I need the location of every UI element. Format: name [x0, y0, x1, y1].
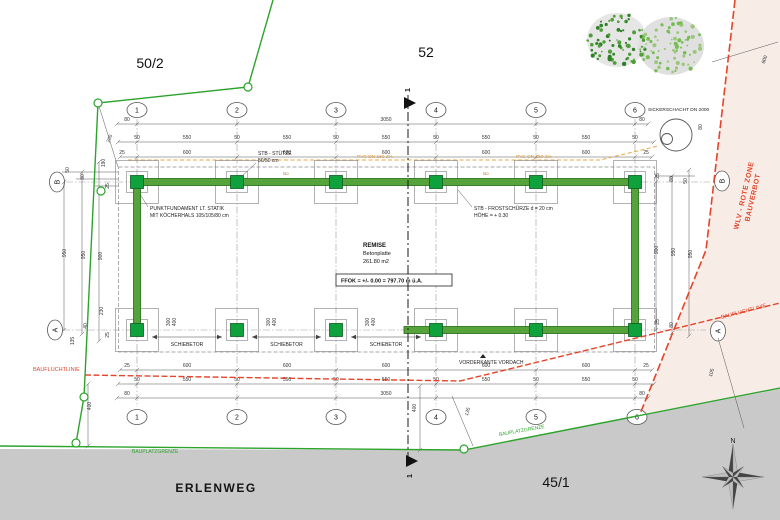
dimension-text-group: 950	[62, 249, 68, 258]
tree-foliage-dot	[659, 62, 662, 65]
tree-foliage-dot	[698, 47, 702, 51]
dimension-text: 135	[70, 337, 76, 346]
tree-foliage-dot	[674, 70, 676, 72]
tree-foliage-dot	[639, 48, 641, 50]
gate-arrow-left-icon	[152, 335, 157, 339]
tree-foliage-dot	[601, 51, 603, 53]
column-footing-green	[430, 176, 443, 189]
tree-foliage-dot	[683, 51, 687, 55]
dimension-text: 25	[643, 150, 649, 156]
dimension-text: 550	[582, 377, 591, 383]
dimension-text-group: 25	[105, 183, 111, 189]
bauplatzgrenze-label-left: BAUPLATZGRENZE	[132, 449, 179, 455]
tree-foliage-dot	[627, 14, 630, 17]
grid-bubble-top-1: 1	[127, 103, 147, 118]
vordach-annotation: VORDERKANTE VORDACH	[459, 354, 524, 366]
dimension-text: 25	[105, 332, 111, 338]
dimension-text: 600	[183, 363, 192, 369]
tree-foliage-dot	[628, 18, 630, 20]
gate-arrow-right-icon	[316, 335, 321, 339]
grid-bubble-top-5: 5	[526, 103, 546, 118]
tree-foliage-dot	[598, 54, 601, 57]
tree-foliage-dot	[657, 39, 659, 41]
dimension-text: 550	[482, 135, 491, 141]
tree-foliage-dot	[667, 60, 669, 62]
dimension-text-group: 230	[99, 307, 105, 316]
grid-bubble-bottom-4: 4	[426, 410, 446, 425]
tree-foliage-dot	[658, 50, 660, 52]
tree-foliage-dot	[693, 50, 697, 54]
tree-foliage-dot	[608, 50, 612, 54]
tree-foliage-dot	[611, 44, 614, 47]
dimension-text: 50	[632, 377, 638, 383]
tree-foliage-dot	[642, 58, 645, 61]
dimension-text: 600	[582, 150, 591, 156]
tree-foliage-dot	[600, 21, 602, 23]
dimension-text: 230	[99, 307, 105, 316]
pvc-label-left: PVC DN 150 2% →	[357, 154, 399, 160]
frost-skirt-beam-east	[632, 179, 639, 334]
dimension-text-group: 25	[655, 319, 661, 325]
dimension-text: 950	[62, 249, 68, 258]
tree-foliage-dot	[666, 67, 670, 71]
dimension-text: 50	[533, 377, 539, 383]
dimension-text: 25	[655, 319, 661, 325]
parcel-label-45-1: 45/1	[542, 474, 569, 490]
grid-bubble-top-6: 6	[625, 103, 645, 118]
dimension-text: 50	[234, 135, 240, 141]
grid-bubble-label: 1	[135, 415, 139, 422]
ffok-value: FFOK = +/- 0.00 = 797.70 m ü.A.	[341, 279, 423, 285]
dimension-text-group: 25	[105, 332, 111, 338]
tree-group	[586, 13, 704, 75]
dimension-text-group: 950	[671, 248, 677, 257]
dimension-text-group: 135	[70, 337, 76, 346]
tree-foliage-dot	[625, 58, 627, 60]
section-number-top-group: 1	[405, 88, 412, 92]
dimension-text: 50	[333, 377, 339, 383]
dimension-text-group: 950	[688, 250, 694, 259]
dimension-text: 50	[533, 135, 539, 141]
tree-foliage-dot	[652, 51, 655, 54]
vordach-marker-icon	[480, 354, 486, 358]
parcel-label-50-2: 50/2	[136, 55, 163, 71]
tree-foliage-dot	[597, 58, 599, 60]
tree-foliage-dot	[693, 61, 695, 63]
dimension-text-group: 400	[87, 402, 93, 411]
tree-foliage-dot	[622, 62, 626, 66]
boundary-point-icon	[460, 445, 468, 453]
tree-foliage-dot	[646, 37, 650, 41]
shaft-label: SICKERSCHACHT DN 2000	[648, 107, 710, 113]
tree-foliage-dot	[660, 23, 663, 26]
tree-foliage-dot	[655, 29, 658, 32]
gate-size-dims: 300400	[365, 318, 377, 327]
street-name-label: ERLENWEG	[175, 481, 256, 495]
tree-foliage-dot	[616, 39, 618, 41]
tree-foliage-dot	[673, 57, 676, 60]
tree-foliage-dot	[682, 55, 685, 58]
tree-foliage-dot	[617, 20, 620, 23]
frost-skirt-beam-north	[134, 179, 639, 186]
tree-foliage-dot	[676, 61, 680, 65]
tree-foliage-dot	[654, 60, 658, 64]
tree-foliage-dot	[608, 20, 610, 22]
tree-foliage-dot	[628, 37, 631, 40]
dimension-text: 50	[134, 135, 140, 141]
tree-foliage-dot	[654, 69, 657, 72]
tree-foliage-dot	[676, 46, 678, 48]
tree-foliage-dot	[649, 40, 652, 43]
gate-arrow-right-icon	[217, 335, 222, 339]
grid-bubble-bottom-5: 5	[526, 410, 546, 425]
stuetze-label-line2: 50/50 cm	[258, 158, 279, 164]
grid-bubble-row-b-right: B	[715, 171, 730, 191]
dimension-text: 50	[134, 377, 140, 383]
tree-foliage-dot	[598, 45, 601, 48]
tree-foliage-dot	[666, 30, 669, 33]
dimension-text-group: 80	[698, 124, 704, 130]
column-footing-green	[330, 176, 343, 189]
section-number-bottom-group: 1	[407, 474, 414, 478]
gates-group: SCHIEBETOR300400SCHIEBETOR300400SCHIEBET…	[152, 318, 421, 348]
tree-foliage-dot	[682, 63, 685, 66]
dimension-text: 25	[105, 183, 111, 189]
tree-foliage-dot	[679, 21, 682, 24]
tree-foliage-dot	[670, 43, 672, 45]
grid-bubble-label: A	[716, 328, 723, 333]
tree-foliage-dot	[640, 51, 642, 53]
tree-foliage-dot	[691, 35, 695, 39]
grid-bubble-bottom-2: 2	[227, 410, 247, 425]
grid-bubble-label: 5	[534, 108, 538, 115]
parcel-label-52: 52	[418, 44, 434, 60]
grid-bubble-label: 2	[235, 415, 239, 422]
tree-foliage-dot	[698, 33, 701, 36]
iso-mark-right: Iso	[483, 171, 489, 176]
dimension-text: 950	[81, 251, 87, 260]
tree-foliage-dot	[617, 40, 621, 44]
tree-foliage-dot	[605, 23, 608, 26]
tree-foliage-dot	[622, 49, 624, 51]
tree-foliage-dot	[676, 31, 679, 34]
dimension-text-group: 50	[683, 178, 689, 184]
column-footing-green	[430, 324, 443, 337]
tree-foliage-dot	[657, 66, 661, 70]
grid-bubble-label: 2	[235, 108, 239, 115]
tree-foliage-dot	[650, 50, 652, 52]
tree-foliage-dot	[669, 17, 673, 21]
building-area: 261.80 m2	[363, 259, 389, 265]
tree-foliage-dot	[608, 33, 611, 36]
dimension-text-group: 80	[669, 322, 675, 328]
leader-line	[242, 163, 256, 176]
grid-bubble-top-4: 4	[426, 103, 446, 118]
tree-foliage-dot	[671, 39, 673, 41]
tree-foliage-dot	[595, 42, 598, 45]
grid-bubble-label: 4	[434, 415, 438, 422]
grid-bubble-label: B	[55, 179, 62, 184]
tree-foliage-dot	[626, 44, 630, 48]
grid-bubble-label: 5	[534, 415, 538, 422]
schiebetor-label: SCHIEBETOR	[370, 342, 403, 348]
gate-arrow-left-icon	[351, 335, 356, 339]
tree-foliage-dot	[620, 15, 623, 18]
dimension-text: 50	[433, 135, 439, 141]
dimension-text-group: 400	[412, 404, 418, 413]
dimension-text-group: 80	[80, 174, 86, 180]
tree-foliage-dot	[675, 66, 678, 69]
tree-foliage-dot	[609, 40, 611, 42]
tie-line	[452, 396, 473, 446]
tree-foliage-dot	[688, 36, 690, 38]
dimension-text-group: 25	[655, 173, 661, 179]
grid-bubble-label: 4	[434, 108, 438, 115]
dimension-text-group: 80	[669, 176, 675, 182]
tree-foliage-dot	[687, 64, 689, 66]
dimension-text: 50	[632, 135, 638, 141]
dimension-text: 600	[482, 150, 491, 156]
dimension-text: 950	[688, 250, 694, 259]
dimension-text: 50	[683, 178, 689, 184]
dimension-text: 950	[671, 248, 677, 257]
tree-foliage-dot	[643, 46, 645, 48]
boundary-point-icon	[72, 439, 80, 447]
section-number-bottom: 1	[407, 474, 414, 478]
dimension-text: 135	[464, 407, 472, 417]
tree-foliage-dot	[687, 45, 689, 47]
dimension-text: 25	[655, 173, 661, 179]
tree-foliage-dot	[673, 37, 677, 41]
building-slab: Betonplatte	[363, 251, 391, 257]
tree-foliage-dot	[640, 35, 643, 38]
tree-foliage-dot	[624, 21, 626, 23]
dimension-text: 80	[639, 391, 645, 397]
pvc-label-right: PVC DN 150 2% →	[516, 154, 558, 160]
tree-foliage-dot	[671, 71, 674, 74]
stuetze-label-line1: STB - STÜTZE	[258, 150, 292, 157]
dimension-text: 25	[124, 363, 130, 369]
tree-foliage-dot	[672, 49, 675, 52]
dimension-text: 80	[80, 174, 86, 180]
column-footing-green	[231, 176, 244, 189]
tree-foliage-dot	[632, 60, 636, 64]
dimension-text: 550	[183, 135, 192, 141]
column-footing-green	[629, 324, 642, 337]
tree-foliage-dot	[591, 54, 595, 58]
boundary-points-group	[72, 83, 468, 453]
leader-line	[140, 194, 148, 207]
dimension-text: 80	[669, 322, 675, 328]
dimension-text: 25	[643, 363, 649, 369]
tree-foliage-dot	[646, 55, 650, 59]
tree-foliage-dot	[675, 17, 677, 19]
schiebetor-label: SCHIEBETOR	[270, 342, 303, 348]
grid-bubble-bottom-1: 1	[127, 410, 147, 425]
iso-mark-left: Iso	[283, 171, 289, 176]
baufluchtlinie-label-left: BAUFLUCHTLINIE	[33, 367, 80, 373]
site-plan-canvas: 112233445566BBAA SCHIEBETOR300400SCHIEBE…	[0, 0, 780, 520]
compass-north-label: N	[730, 438, 735, 445]
dimension-text-group: 190	[101, 159, 107, 168]
tree-foliage-dot	[639, 53, 643, 57]
tree-foliage-dot	[681, 41, 684, 44]
grid-bubble-row-b-left: B	[50, 172, 65, 192]
frost-label-line2: HÖHE = + 0.30	[474, 212, 508, 219]
gate-dim-b: 400	[371, 318, 377, 327]
column-footing-green	[629, 176, 642, 189]
tree-foliage-dot	[632, 48, 635, 51]
section-number-top: 1	[405, 88, 412, 92]
gate-dim-b: 400	[272, 318, 278, 327]
dimension-text: 600	[283, 363, 292, 369]
tree-foliage-dot	[594, 52, 597, 55]
tree-foliage-dot	[622, 29, 624, 31]
tree-foliage-dot	[641, 46, 643, 48]
column-footing-green	[530, 324, 543, 337]
tree-foliage-dot	[610, 18, 614, 22]
dimension-text: 205	[106, 133, 115, 143]
dimension-text: 900	[98, 252, 104, 261]
grid-bubble-label: 1	[135, 108, 139, 115]
tree-foliage-dot	[686, 38, 689, 41]
tree-foliage-dot	[689, 67, 693, 71]
building-name: REMISE	[363, 243, 386, 249]
tree-foliage-dot	[618, 44, 622, 48]
dimension-text: 550	[183, 377, 192, 383]
dimension-text-group: 50	[65, 167, 71, 173]
tree-foliage-dot	[586, 39, 588, 41]
grid-bubble-label: 3	[334, 108, 338, 115]
dimension-text: 550	[382, 135, 391, 141]
dimension-text: 550	[582, 135, 591, 141]
tree-foliage-dot	[638, 29, 641, 32]
building-title-block: REMISE Betonplatte 261.80 m2 FFOK = +/- …	[336, 243, 452, 286]
column-footing-green	[231, 324, 244, 337]
fundament-label-line2: MIT KÖCHERHALS 105/105/80 cm	[150, 212, 229, 219]
dimension-text: 900	[654, 246, 660, 255]
site-plan-drawing: 112233445566BBAA SCHIEBETOR300400SCHIEBE…	[0, 0, 780, 520]
tree-foliage-dot	[671, 22, 675, 26]
tree-foliage-dot	[633, 59, 635, 61]
grid-bubble-row-a-left: A	[48, 320, 63, 340]
column-footing-green	[530, 176, 543, 189]
dimension-text-group: 135	[464, 407, 472, 417]
tree-foliage-dot	[645, 43, 647, 45]
dimension-text: 600	[382, 363, 391, 369]
frost-label-line1: STB - FROSTSCHÜRZE d = 20 cm	[474, 205, 553, 212]
tree-foliage-dot	[612, 53, 615, 56]
dimension-text: 3050	[380, 391, 391, 397]
tree-foliage-dot	[599, 28, 603, 32]
frostschuerze-annotation: STB - FROSTSCHÜRZE d = 20 cm HÖHE = + 0.…	[458, 190, 553, 219]
dimension-text-group: 205	[106, 133, 115, 143]
gate-size-dims: 300400	[166, 318, 178, 327]
tree-foliage-dot	[698, 44, 701, 47]
tree-foliage-dot	[680, 47, 682, 49]
tree-foliage-dot	[608, 56, 612, 60]
grid-bubble-label: A	[53, 327, 60, 332]
dimension-text: 80	[124, 117, 130, 123]
fundament-label-line1: PUNKTFUNDAMENT LT. STATIK	[150, 206, 225, 212]
tree-foliage-dot	[668, 26, 671, 29]
tree-foliage-dot	[685, 39, 687, 41]
tree-foliage-dot	[677, 38, 681, 42]
gate-dim-b: 400	[172, 318, 178, 327]
tree-foliage-dot	[652, 43, 656, 47]
leader-line	[458, 190, 472, 207]
grid-bubble-top-2: 2	[227, 103, 247, 118]
dimension-text-group: 900	[654, 246, 660, 255]
dimension-text: 550	[283, 135, 292, 141]
shaft-inner-circle	[662, 134, 673, 145]
tree-foliage-dot	[599, 24, 603, 28]
gate-size-dims: 300400	[266, 318, 278, 327]
dimension-text: 3050	[380, 117, 391, 123]
boundary-point-icon	[94, 99, 102, 107]
tree-foliage-dot	[625, 42, 627, 44]
column-footing-green	[131, 176, 144, 189]
tree-foliage-dot	[690, 24, 694, 28]
section-arrow-top-icon	[404, 97, 416, 109]
tree-foliage-dot	[591, 49, 594, 52]
tree-foliage-dot	[589, 34, 593, 38]
grid-bubble-top-3: 3	[326, 103, 346, 118]
dimension-text: 50	[65, 167, 71, 173]
tree-foliage-dot	[632, 30, 636, 34]
dimension-text-group: 900	[98, 252, 104, 261]
grid-bubble-label: B	[720, 178, 727, 183]
tree-foliage-dot	[656, 56, 659, 59]
grid-bubble-label: 6	[633, 108, 637, 115]
dimension-text: 550	[482, 377, 491, 383]
tree-foliage-dot	[642, 39, 645, 42]
tree-foliage-dot	[617, 28, 621, 32]
tree-foliage-dot	[602, 40, 605, 43]
dimension-text: 190	[101, 159, 107, 168]
dimension-text: 50	[333, 135, 339, 141]
tree-foliage-dot	[613, 15, 616, 18]
boundary-point-icon	[97, 187, 105, 195]
dimension-text: 600	[183, 150, 192, 156]
grid-bubble-bottom-3: 3	[326, 410, 346, 425]
gate-arrow-right-icon	[416, 335, 421, 339]
tree-foliage-dot	[597, 39, 600, 42]
dimension-text-group: 950	[81, 251, 87, 260]
tree-foliage-dot	[654, 35, 657, 38]
tree-foliage-dot	[613, 62, 615, 64]
gate-arrow-left-icon	[252, 335, 257, 339]
tree-foliage-dot	[628, 53, 631, 56]
boundary-point-icon	[80, 393, 88, 401]
tree-foliage-dot	[641, 29, 643, 31]
vordach-label: VORDERKANTE VORDACH	[459, 360, 524, 366]
dimension-text: 400	[87, 402, 93, 411]
dimension-lines-group	[62, 122, 695, 452]
column-footing-green	[131, 324, 144, 337]
tree-foliage-dot	[590, 43, 594, 47]
tree-foliage-dot	[664, 48, 666, 50]
dimension-text: 80	[669, 176, 675, 182]
dimension-text: 600	[582, 363, 591, 369]
tree-foliage-dot	[676, 49, 678, 51]
tree-foliage-dot	[689, 54, 691, 56]
dimension-text: 400	[412, 404, 418, 413]
tree-foliage-dot	[644, 33, 647, 36]
schiebetor-label: SCHIEBETOR	[171, 342, 204, 348]
dimension-text: 80	[124, 391, 130, 397]
dimension-text: 25	[119, 150, 125, 156]
